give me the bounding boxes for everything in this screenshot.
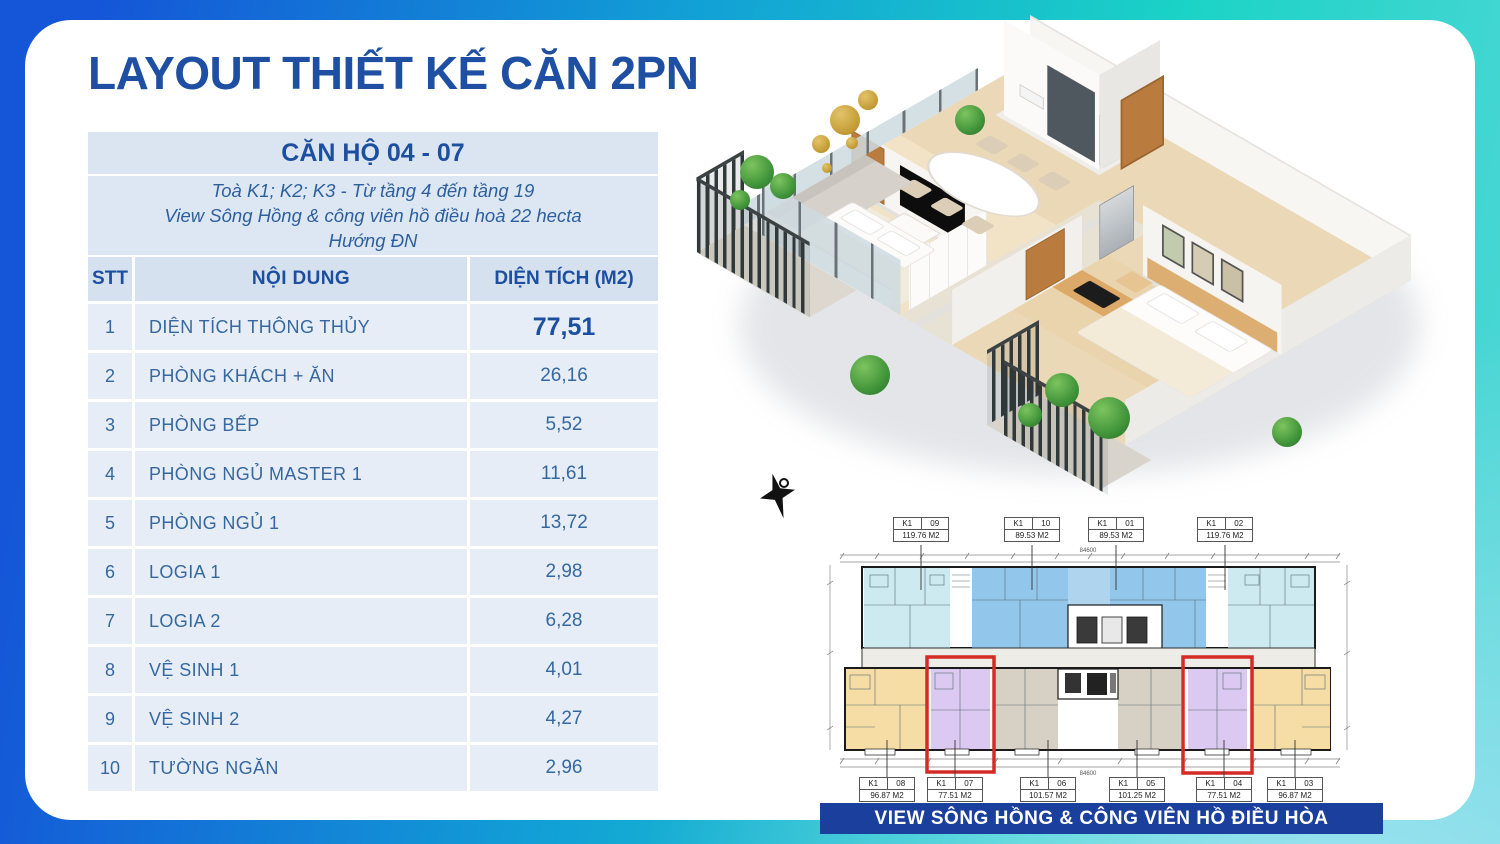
unit-label-06: K106 101.57 M2 [1020,777,1076,802]
plant [1045,373,1079,407]
floor-plan: 84600 84600 [815,505,1460,805]
plant [1272,417,1302,447]
row-value: 11,61 [470,451,658,497]
plant [1088,397,1130,439]
bottom-banner: VIEW SÔNG HỒNG & CÔNG VIÊN HỒ ĐIỀU HÒA [820,803,1383,834]
row-stt: 1 [88,304,132,350]
row-value: 2,96 [470,745,658,791]
row-value: 26,16 [470,353,658,399]
row-name: PHÒNG NGỦ 1 [135,500,467,546]
col-dien-tich: DIỆN TÍCH (M2) [470,257,658,301]
plant [955,105,985,135]
row-name: LOGIA 1 [135,549,467,595]
row-stt: 8 [88,647,132,693]
compass-icon [760,473,796,519]
subtitle-line-1: Toà K1; K2; K3 - Từ tầng 4 đến tầng 19 [212,178,535,203]
unit-label-09: K109 119.76 M2 [893,517,949,542]
apartment-3d-render [700,5,1460,520]
picture-frame [1191,241,1214,286]
row-value: 77,51 [470,304,658,350]
row-value: 4,01 [470,647,658,693]
table-column-header: STT NỘI DUNG DIỆN TÍCH (M2) [88,257,658,301]
table-subtitle: Toà K1; K2; K3 - Từ tầng 4 đến tầng 19 V… [88,176,658,255]
picture-frame [1221,258,1244,303]
gold-decor [830,105,860,135]
table-row: 2 PHÒNG KHÁCH + ĂN 26,16 [88,353,658,399]
bottom-row-units [845,668,1330,750]
table-row: 8 VỆ SINH 1 4,01 [88,647,658,693]
row-value: 5,52 [470,402,658,448]
table-row: 10 TƯỜNG NGĂN 2,96 [88,745,658,791]
row-stt: 4 [88,451,132,497]
row-name: PHÒNG KHÁCH + ĂN [135,353,467,399]
unit-label-02: K102 119.76 M2 [1197,517,1253,542]
row-value: 13,72 [470,500,658,546]
col-stt: STT [88,257,132,301]
gold-decor [822,163,832,173]
row-stt: 9 [88,696,132,742]
plant [740,155,774,189]
row-name: VỆ SINH 1 [135,647,467,693]
page-title: LAYOUT THIẾT KẾ CĂN 2PN [88,46,698,100]
row-name: TƯỜNG NGĂN [135,745,467,791]
col-noi-dung: NỘI DUNG [135,257,467,301]
table-row: 3 PHÒNG BẾP 5,52 [88,402,658,448]
table-row: 5 PHÒNG NGỦ 1 13,72 [88,500,658,546]
row-stt: 5 [88,500,132,546]
row-stt: 10 [88,745,132,791]
row-name: DIỆN TÍCH THÔNG THỦY [135,304,467,350]
table-row: 6 LOGIA 1 2,98 [88,549,658,595]
row-name: PHÒNG BẾP [135,402,467,448]
plant [730,190,750,210]
row-stt: 6 [88,549,132,595]
unit-label-01: K101 89.53 M2 [1088,517,1144,542]
overall-dimension: 84600 [1080,771,1097,777]
sink [1020,84,1044,110]
overall-dimension: 84600 [1080,548,1097,554]
row-name: VỆ SINH 2 [135,696,467,742]
table-row: 9 VỆ SINH 2 4,27 [88,696,658,742]
floor-plan-drawing: 84600 84600 [815,505,1460,805]
unit-label-10: K110 89.53 M2 [1004,517,1060,542]
row-stt: 2 [88,353,132,399]
picture-frame [1162,224,1185,269]
slide: { "title": "LAYOUT THIẾT KẾ CĂN 2PN", "t… [0,0,1500,844]
gold-decor [858,90,878,110]
plant [1018,403,1042,427]
row-stt: 3 [88,402,132,448]
table-row: 7 LOGIA 2 6,28 [88,598,658,644]
table-row: 1 DIỆN TÍCH THÔNG THỦY 77,51 [88,304,658,350]
subtitle-line-3: Hướng ĐN [329,228,418,253]
plant [850,355,890,395]
row-name: LOGIA 2 [135,598,467,644]
table-row: 4 PHÒNG NGỦ MASTER 1 11,61 [88,451,658,497]
row-value: 4,27 [470,696,658,742]
unit-label-03: K103 96.87 M2 [1267,777,1323,802]
table-header: CĂN HỘ 04 - 07 [88,132,658,174]
row-stt: 7 [88,598,132,644]
plant [770,173,796,199]
row-name: PHÒNG NGỦ MASTER 1 [135,451,467,497]
unit-label-04: K104 77.51 M2 [1196,777,1252,802]
subtitle-line-2: View Sông Hồng & công viên hồ điều hoà 2… [164,203,581,228]
row-value: 2,98 [470,549,658,595]
gold-decor [812,135,830,153]
row-value: 6,28 [470,598,658,644]
unit-label-08: K108 96.87 M2 [859,777,915,802]
gold-decor [846,137,858,149]
unit-label-05: K105 101.25 M2 [1109,777,1165,802]
unit-label-07: K107 77.51 M2 [927,777,983,802]
